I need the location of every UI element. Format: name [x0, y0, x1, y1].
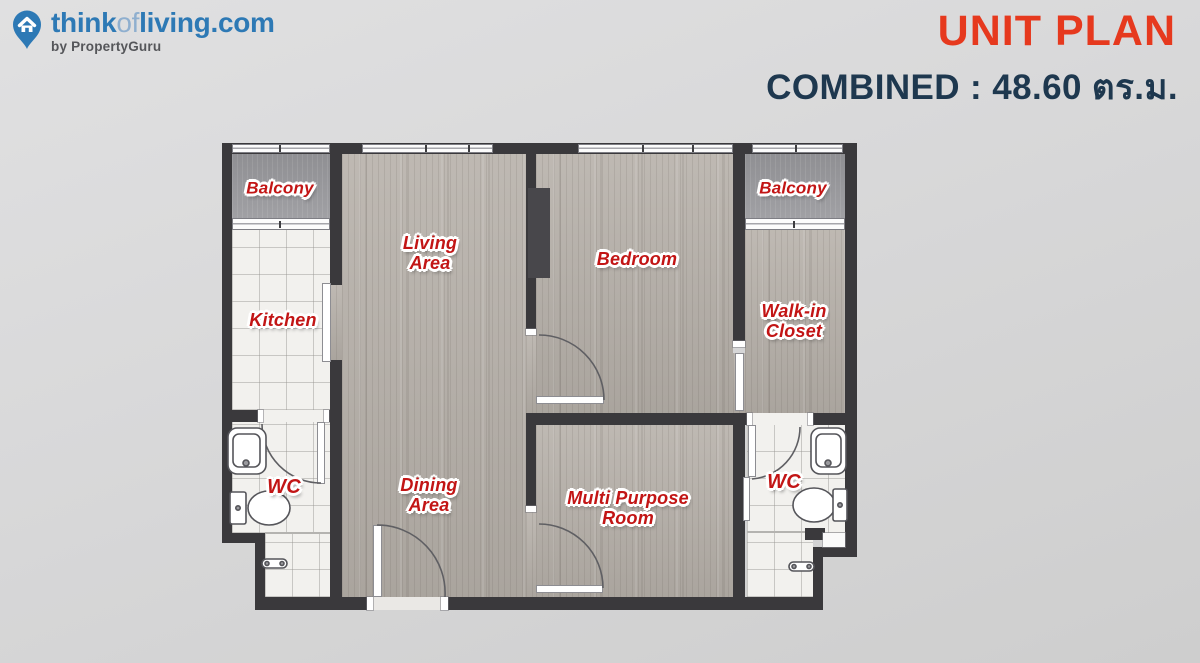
fixtures-overlay: [222, 143, 857, 610]
brand-byline: by PropertyGuru: [51, 39, 275, 54]
room-label-dining-area: Dining Area: [400, 475, 457, 515]
room-label-wc-left: WC: [267, 476, 301, 498]
page-title: UNIT PLAN: [938, 7, 1176, 56]
towel-bar-right-knob: [807, 565, 811, 569]
towel-bar-left-knob: [280, 562, 284, 566]
towel-bar-right-knob: [792, 565, 796, 569]
room-label-line: Area: [400, 495, 457, 515]
room-label-walk-in-closet: Walk-in Closet: [761, 301, 826, 341]
bedroom-door-arc: [539, 335, 604, 400]
sink-left-drain: [243, 460, 249, 466]
brand-dotcom: .com: [210, 7, 274, 38]
room-label-line: Living: [403, 233, 457, 253]
mpr-door-arc: [539, 524, 603, 588]
room-label-balcony-left: Balcony: [246, 178, 314, 197]
sink-right-drain: [825, 460, 831, 466]
room-label-wc-right: WC: [767, 471, 801, 493]
room-label-line: WC: [267, 476, 301, 498]
brand-think: think: [51, 7, 116, 38]
brand-wordmark: thinkofliving.com: [51, 8, 275, 37]
room-label-living-area: Living Area: [403, 233, 457, 273]
room-label-kitchen: Kitchen: [249, 310, 316, 330]
room-label-line: Walk-in: [761, 301, 826, 321]
brand-logo: thinkofliving.com by PropertyGuru: [10, 8, 275, 54]
room-label-line: Balcony: [246, 178, 314, 197]
room-label-line: WC: [767, 471, 801, 493]
room-label-bedroom: Bedroom: [597, 249, 677, 269]
wc-left-door-arc: [262, 424, 321, 483]
room-label-line: Dining: [400, 475, 457, 495]
room-label-line: Bedroom: [597, 249, 677, 269]
room-label-balcony-right: Balcony: [759, 178, 827, 197]
bathroom-fixtures: [228, 428, 847, 571]
room-label-line: Kitchen: [249, 310, 316, 330]
room-label-line: Closet: [761, 321, 826, 341]
door-arcs: [262, 335, 800, 597]
room-label-line: Multi Purpose: [567, 488, 689, 508]
floor-plan: Balcony Kitchen WC Living Area Dining Ar…: [222, 143, 857, 610]
room-label-line: Room: [567, 508, 689, 528]
brand-of: of: [116, 7, 139, 38]
toilet-right-button: [838, 503, 842, 507]
brand-text: thinkofliving.com by PropertyGuru: [51, 8, 275, 54]
room-label-line: Balcony: [759, 178, 827, 197]
towel-bar-left-knob: [265, 562, 269, 566]
room-label-multi-purpose-room: Multi Purpose Room: [567, 488, 689, 528]
unit-plan-page: thinkofliving.com by PropertyGuru UNIT P…: [0, 0, 1200, 663]
room-label-line: Area: [403, 253, 457, 273]
unit-area-subtitle: COMBINED : 48.60 ตร.ม.: [766, 60, 1178, 115]
entrance-door-arc: [377, 525, 445, 597]
map-pin-house-icon: [10, 8, 44, 50]
toilet-left-button: [236, 506, 240, 510]
brand-living: living: [139, 7, 210, 38]
